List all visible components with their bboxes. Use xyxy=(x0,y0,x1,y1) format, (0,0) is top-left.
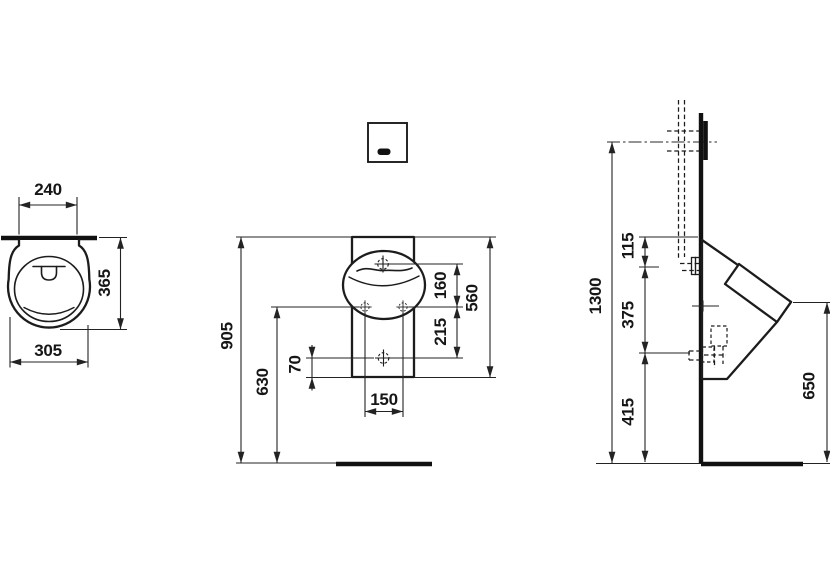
dim-label-305: 305 xyxy=(34,341,61,360)
bowl-front xyxy=(343,251,425,319)
dim-label-115: 115 xyxy=(619,233,638,260)
dim-side-outlet-to-floor: 415 xyxy=(619,353,646,462)
dim-front-height-overall: 905 xyxy=(218,237,242,463)
dim-label-415: 415 xyxy=(619,398,638,425)
dim-front-height-to-holes: 630 xyxy=(253,307,277,463)
technical-drawing-page: 240 365 305 xyxy=(0,0,830,584)
dim-label-650: 650 xyxy=(800,372,819,399)
top-view: 240 365 305 xyxy=(1,180,127,368)
dim-label-905: 905 xyxy=(218,322,237,349)
dim-label-150: 150 xyxy=(370,390,397,409)
dim-front-holes-to-drain: 215 xyxy=(431,307,457,358)
dim-label-1300: 1300 xyxy=(586,278,605,315)
sensor-plate-side xyxy=(703,121,708,160)
dim-label-215: 215 xyxy=(431,318,450,345)
dim-side-sensor-height: 1300 xyxy=(586,142,612,463)
urinal-installation-drawing: 240 365 305 xyxy=(0,0,830,584)
dim-label-560: 560 xyxy=(463,284,482,311)
side-view: 1300 115 375 415 650 xyxy=(586,100,830,464)
dim-side-rim-to-floor: 650 xyxy=(800,303,828,463)
dim-label-160: 160 xyxy=(431,272,450,299)
flush-sensor-plate xyxy=(368,123,407,162)
dim-label-240: 240 xyxy=(34,180,61,199)
dim-side-top-to-inlet: 115 xyxy=(619,233,646,267)
dim-front-drain-offset: 70 xyxy=(286,345,313,391)
dim-front-top-to-holes: 160 xyxy=(431,264,457,307)
front-view: 905 630 70 150 160 215 560 xyxy=(218,123,497,464)
dim-front-body-height: 560 xyxy=(463,237,491,378)
dim-side-inlet-to-outlet: 375 xyxy=(619,267,646,353)
dim-front-hole-spacing: 150 xyxy=(365,390,403,412)
dim-top-width-back: 240 xyxy=(19,180,77,235)
sensor-window xyxy=(378,149,391,156)
dim-label-630: 630 xyxy=(253,368,272,395)
dim-label-375: 375 xyxy=(619,301,638,328)
dim-label-70: 70 xyxy=(286,355,305,373)
dim-label-365: 365 xyxy=(95,269,114,296)
